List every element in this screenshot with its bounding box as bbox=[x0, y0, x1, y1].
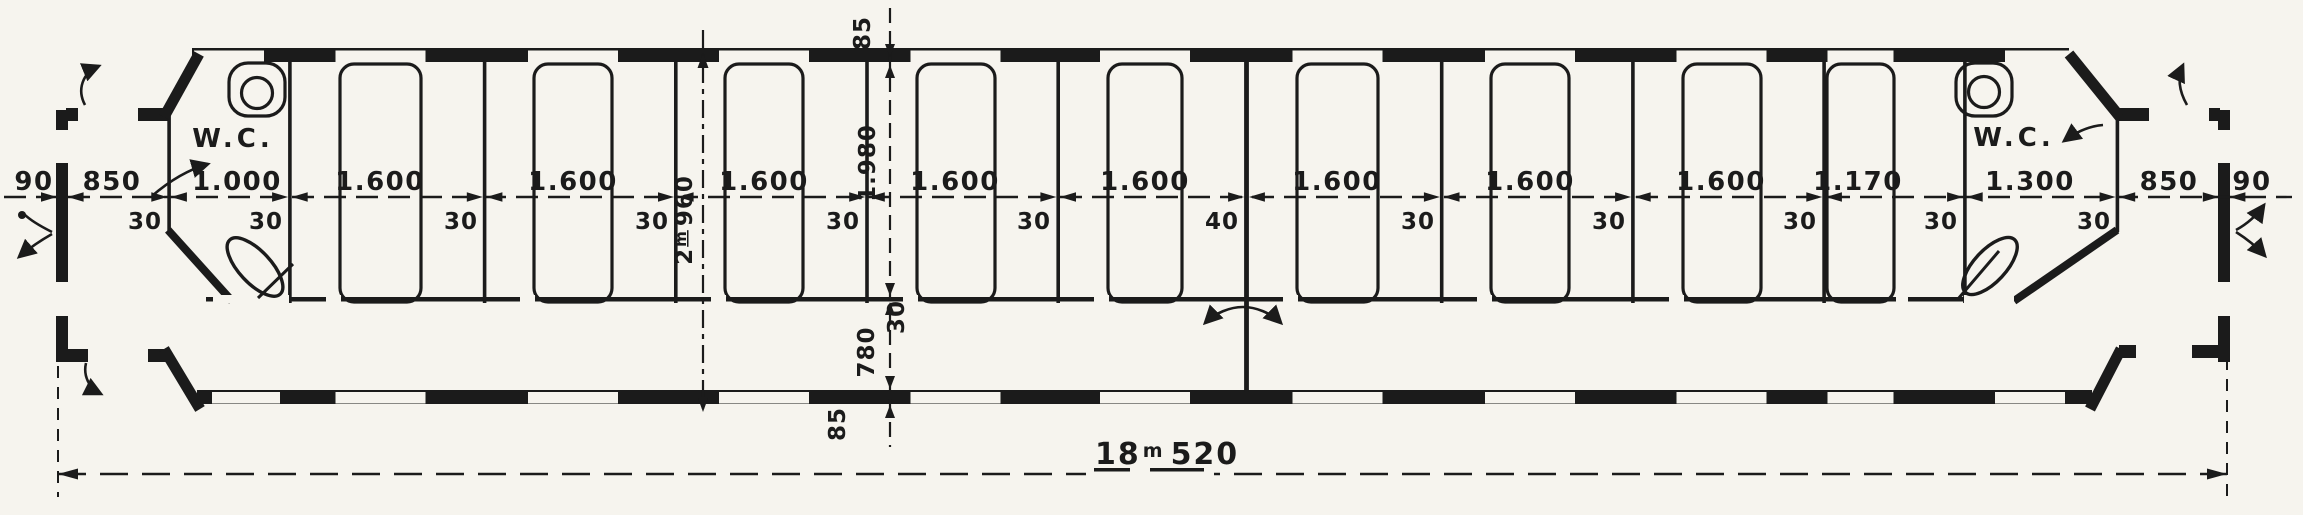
wc-right-label: W.C. bbox=[1973, 123, 2054, 153]
window-opening bbox=[194, 51, 264, 63]
corridor-wall bbox=[206, 297, 2014, 302]
window-opening bbox=[719, 392, 809, 404]
dim-end-wall-right: 90 bbox=[2232, 167, 2271, 197]
overall-length-millimetres: 520 bbox=[1171, 437, 1240, 472]
window-opening bbox=[1100, 51, 1190, 63]
dim-partition-11: 30 bbox=[1924, 209, 1958, 235]
dim-compartment-3: 1.600 bbox=[719, 167, 809, 197]
platform-door-arrow bbox=[81, 66, 99, 105]
dim-arrow bbox=[2203, 192, 2219, 201]
carriage-floor-plan: 90 850 W.C. 1.000 1.600 1.600 1.600 1.60… bbox=[0, 0, 2303, 515]
corridor-swing-door-wall bbox=[1244, 303, 1249, 392]
dim-arrow bbox=[292, 192, 308, 201]
window-opening bbox=[2005, 51, 2075, 63]
overall-width-metres: 2 bbox=[672, 248, 698, 265]
dim-arrow bbox=[58, 469, 78, 480]
end-door-opening bbox=[54, 130, 70, 163]
dim-arrow bbox=[885, 283, 895, 296]
chamfer-wall bbox=[2069, 54, 2120, 117]
door-opening bbox=[78, 106, 138, 123]
center-partition-wall bbox=[1244, 62, 1249, 303]
wc-chamfer-wall bbox=[168, 230, 232, 301]
door-opening bbox=[2149, 106, 2209, 123]
dim-partition-6: 30 bbox=[1017, 209, 1051, 235]
corridor-door-opening bbox=[1477, 295, 1492, 303]
platform-door-arrow bbox=[85, 363, 101, 394]
body-shell bbox=[54, 48, 2232, 404]
platform-door-arrow bbox=[2180, 65, 2187, 105]
dim-compartment-7: 1.600 bbox=[1485, 167, 1575, 197]
corridor-door-opening bbox=[711, 295, 726, 303]
dim-arrow bbox=[467, 192, 483, 201]
dim-wc-left: 1.000 bbox=[192, 167, 282, 197]
dim-wc-right: 1.300 bbox=[1985, 167, 2075, 197]
window-opening bbox=[911, 51, 1001, 63]
dim-platform-left: 850 bbox=[83, 167, 142, 197]
corridor-door-opening bbox=[1896, 295, 1908, 303]
window-opening bbox=[212, 392, 280, 404]
door-opening bbox=[88, 347, 148, 364]
dim-arrow bbox=[151, 192, 167, 201]
window-opening bbox=[1293, 392, 1383, 404]
end-door-arrow bbox=[24, 214, 52, 232]
dim-arrow bbox=[1060, 192, 1076, 201]
corridor-door-opening bbox=[1094, 295, 1109, 303]
dim-side-wall-top: 85 bbox=[850, 16, 876, 50]
dim-arrow bbox=[486, 192, 502, 201]
end-door-arrow-dot bbox=[18, 211, 26, 219]
dim-compartment-4: 1.600 bbox=[910, 167, 1000, 197]
corridor-door-opening bbox=[1283, 295, 1298, 303]
dim-arrow bbox=[885, 65, 895, 78]
dim-partition-4: 30 bbox=[635, 209, 669, 235]
dim-compartment-6: 1.600 bbox=[1292, 167, 1382, 197]
dim-arrow bbox=[2207, 469, 2227, 480]
wc-door-arrow bbox=[2064, 125, 2103, 141]
end-door-arrow bbox=[2236, 205, 2264, 230]
dim-arrow bbox=[2119, 192, 2135, 201]
window-opening bbox=[336, 392, 426, 404]
toilet-bowl-icon bbox=[1969, 77, 2000, 108]
window-opening bbox=[336, 51, 426, 63]
wc-left-label: W.C. bbox=[192, 124, 273, 154]
window-opening bbox=[719, 51, 809, 63]
overall-width-millimetres: 960 bbox=[672, 175, 698, 226]
dim-compartment-depth: 1.980 bbox=[855, 124, 881, 202]
corridor-door-opening bbox=[326, 295, 341, 303]
end-door-opening bbox=[2216, 130, 2232, 163]
window-opening bbox=[1485, 51, 1575, 63]
dim-compartment-2: 1.600 bbox=[528, 167, 618, 197]
overall-length-unit: m bbox=[1143, 440, 1165, 462]
overall-width-unit: m bbox=[672, 230, 690, 247]
dim-arrow bbox=[171, 192, 187, 201]
dim-arrow bbox=[2100, 192, 2116, 201]
chamfer-wall bbox=[2090, 349, 2121, 409]
chamfer-wall bbox=[164, 54, 199, 117]
dim-corridor-wall: 30 bbox=[884, 300, 910, 334]
window-opening bbox=[911, 392, 1001, 404]
window-opening bbox=[1828, 51, 1894, 63]
end-door-arrow bbox=[2236, 232, 2265, 256]
window-opening bbox=[1293, 51, 1383, 63]
dim-arrow bbox=[1615, 192, 1631, 201]
dim-partition-12: 30 bbox=[2077, 209, 2111, 235]
dim-arrow bbox=[1424, 192, 1440, 201]
wc-chamfer-wall bbox=[2014, 230, 2117, 301]
dimension-lines bbox=[4, 8, 2292, 497]
window-opening bbox=[1100, 392, 1190, 404]
dim-partition-9: 30 bbox=[1592, 209, 1626, 235]
end-door-opening bbox=[54, 282, 70, 316]
partition-wall bbox=[1056, 62, 1060, 303]
dim-partition-10: 30 bbox=[1783, 209, 1817, 235]
dim-arrow bbox=[1967, 192, 1983, 201]
corridor-swing-door-arrow bbox=[1205, 307, 1243, 323]
window-opening bbox=[1828, 392, 1894, 404]
dim-arrow bbox=[1444, 192, 1460, 201]
partition-wall bbox=[1631, 62, 1635, 303]
window-opening bbox=[528, 51, 618, 63]
dim-compartment-5: 1.600 bbox=[1100, 167, 1190, 197]
window-opening bbox=[1677, 51, 1767, 63]
partition-wall bbox=[1440, 62, 1444, 303]
dim-partition-5: 30 bbox=[826, 209, 860, 235]
overall-length-metres: 18 bbox=[1095, 437, 1141, 472]
dim-arrow bbox=[1947, 192, 1963, 201]
door-opening bbox=[2136, 341, 2192, 358]
dim-arrow bbox=[1635, 192, 1651, 201]
end-door-arrow bbox=[19, 234, 52, 257]
window-opening bbox=[1485, 392, 1575, 404]
partition-wall bbox=[483, 62, 487, 303]
dim-arrow bbox=[1249, 192, 1265, 201]
dim-half-compartment: 1.170 bbox=[1813, 167, 1903, 197]
end-door-opening bbox=[2216, 282, 2232, 316]
dim-compartment-1: 1.600 bbox=[335, 167, 425, 197]
dim-platform-right: 850 bbox=[2140, 167, 2199, 197]
window-opening bbox=[1677, 392, 1767, 404]
scanned-blueprint-page: 90 850 W.C. 1.000 1.600 1.600 1.600 1.60… bbox=[0, 0, 2303, 515]
dim-arrow bbox=[1228, 192, 1244, 201]
dim-arrow bbox=[885, 405, 895, 418]
dim-partition-2: 30 bbox=[249, 209, 283, 235]
dim-arrow bbox=[68, 192, 84, 201]
wc-partition-wall bbox=[2116, 110, 2120, 232]
dim-partition-7: 40 bbox=[1205, 209, 1239, 235]
dim-arrow bbox=[1040, 192, 1056, 201]
wc-partition-wall bbox=[167, 110, 171, 232]
dim-side-wall-bottom: 85 bbox=[825, 407, 851, 441]
window-opening bbox=[528, 392, 618, 404]
corridor-door-opening bbox=[1669, 295, 1684, 303]
dim-arrow bbox=[885, 376, 895, 389]
dim-partition-3: 30 bbox=[444, 209, 478, 235]
toilet-bowl-icon bbox=[242, 78, 273, 109]
partition-wall bbox=[1963, 62, 1967, 303]
window-opening bbox=[1995, 392, 2065, 404]
dim-end-wall-left: 90 bbox=[14, 167, 53, 197]
dim-overall-width: 2m960 bbox=[672, 175, 698, 265]
chamfer-wall bbox=[164, 349, 200, 409]
dim-partition-8: 30 bbox=[1401, 209, 1435, 235]
dim-arrow bbox=[698, 397, 709, 412]
dim-partition-1: 30 bbox=[128, 209, 162, 235]
dim-compartment-8: 1.600 bbox=[1676, 167, 1766, 197]
corridor-door-opening bbox=[520, 295, 535, 303]
dim-corridor-width: 780 bbox=[854, 326, 880, 377]
